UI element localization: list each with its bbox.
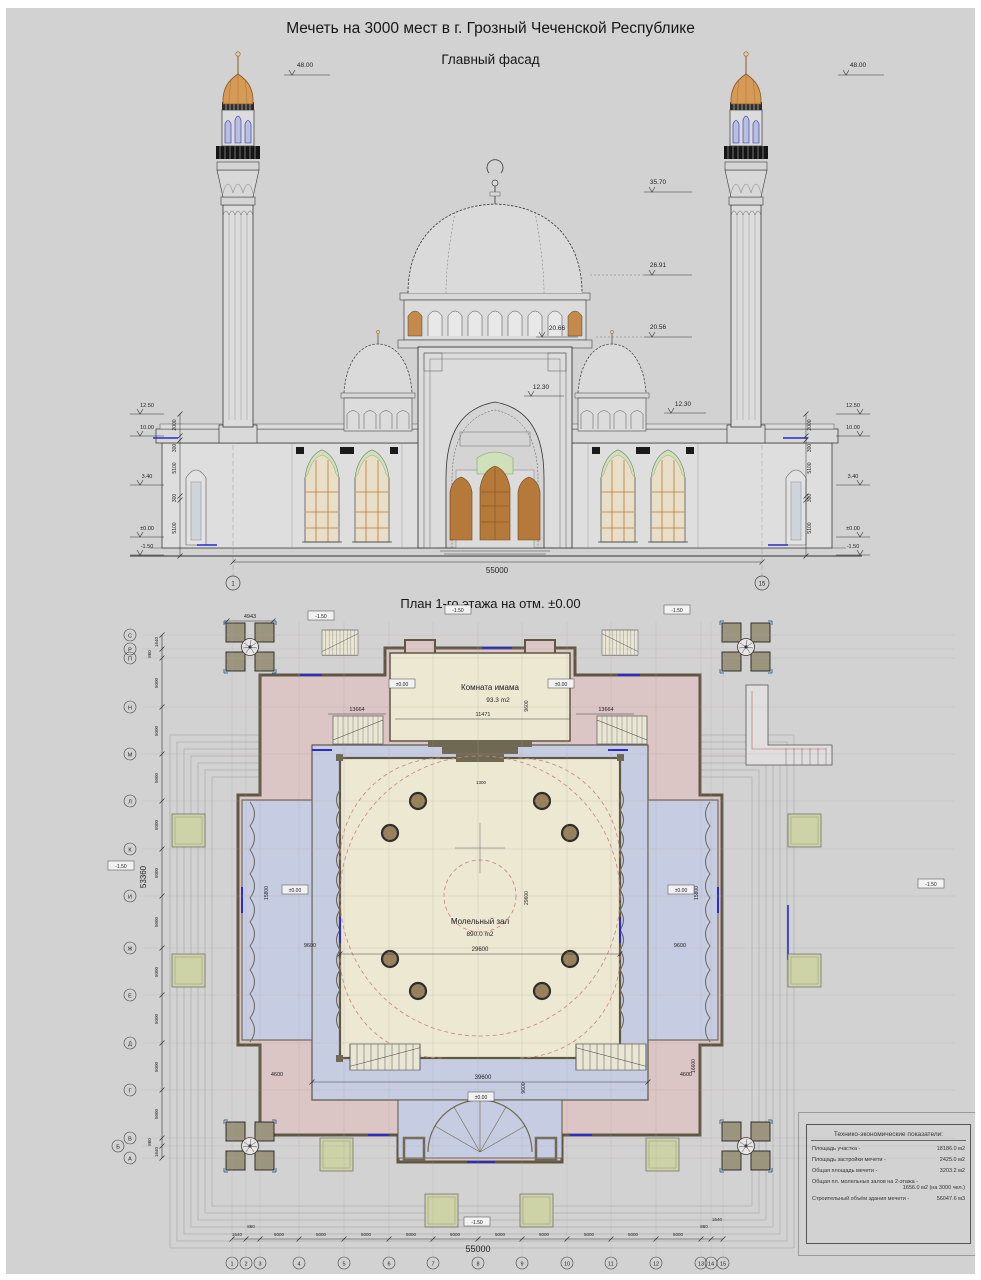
dim-29600-h: 29600 (472, 947, 489, 953)
level-mark: ±0.00 (140, 526, 154, 532)
teo-label: Строительный объём здания мечети - (812, 1196, 909, 1202)
axis-bubble: 13 (698, 1262, 704, 1268)
hall-label: Молельный зал (451, 917, 510, 926)
teo-value: 56047.6 м3 (937, 1196, 965, 1202)
level-box: -1.50 (315, 614, 327, 620)
dim: 5000 (539, 1232, 550, 1237)
level-box: -1.50 (471, 1220, 483, 1226)
stair-block (333, 716, 383, 744)
vdim: 300 (172, 494, 178, 503)
axis-bubble: Р (128, 648, 132, 654)
facade-levels-left: 12.50 10.00 3.40 ±0.00 -1.50 (130, 403, 164, 555)
plan-left-dims: 1640 860 5000 5000 5000 5000 5000 5000 5… (139, 633, 165, 1161)
dim-15800-right: 15800 (694, 886, 700, 900)
dim: 5000 (274, 1232, 285, 1237)
teo-label: Общая площадь мечети - (812, 1168, 877, 1174)
dim: 5000 (154, 1013, 159, 1024)
facade-axis-bubble: 1 (231, 582, 235, 588)
dim-1300: 1300 (476, 780, 487, 785)
axis-bubble: Д (128, 1042, 132, 1048)
axis-bubble: Н (128, 706, 132, 712)
facade-levels-right: 12.50 10.00 3.40 ±0.00 -1.50 (836, 403, 870, 555)
axis-bubble: Л (128, 800, 132, 806)
plan-grid-bubbles-left (112, 629, 136, 1164)
dim-15800-left: 15800 (264, 886, 270, 900)
ramp-right (746, 685, 832, 765)
level-mark: 12.50 (140, 403, 154, 409)
axis-bubble: 3 (258, 1262, 261, 1268)
vdim: 5100 (807, 462, 813, 473)
imam-room-label: Комната имама (461, 683, 519, 692)
stair-block (350, 1044, 420, 1070)
dim: 1640 (154, 1146, 159, 1157)
axis-bubble: 8 (476, 1262, 479, 1268)
dim-4600-left: 4600 (271, 1072, 283, 1078)
level-box: ±0.00 (555, 682, 568, 688)
teo-value: 2425.0 м2 (940, 1157, 965, 1163)
elev-48-right: 48.00 (850, 62, 867, 69)
dim: 5000 (154, 1108, 159, 1119)
dim: 5000 (628, 1232, 639, 1237)
prayer-hall (340, 758, 620, 1058)
teo-row: Площадь участка - 18186.0 м2 (812, 1146, 965, 1152)
elev-2066: 20.66 (549, 325, 566, 332)
facade-total-width: 55000 (486, 566, 509, 575)
axis-bubble: 10 (564, 1262, 570, 1268)
dim: 5000 (154, 1061, 159, 1072)
facade-drawing: 1 15 55000 48.00 48.00 35.70 26.91 20.56… (130, 52, 884, 590)
entrance-door (518, 477, 540, 540)
teo-label: Площадь застройки мечети - (812, 1157, 886, 1163)
level-box: -1.50 (925, 882, 937, 888)
level-mark: 10.00 (140, 425, 154, 431)
axis-bubble: Г (129, 1089, 132, 1095)
dim: 5000 (154, 966, 159, 977)
entrance-portal (418, 347, 572, 554)
level-mark: -1.50 (141, 544, 154, 550)
crescent-finial-icon (487, 160, 503, 173)
level-mark: -1.50 (847, 544, 860, 550)
teo-row: Площадь застройки мечети - 2425.0 м2 (812, 1157, 965, 1163)
axis-bubble: В (128, 1137, 132, 1143)
axis-bubble: 14 (708, 1262, 714, 1268)
dim: 1640 (712, 1217, 723, 1222)
teo-title: Технико-экономические показатели: (811, 1131, 966, 1141)
dim-9600-right: 9600 (674, 943, 686, 949)
axis-bubble: Ж (127, 947, 132, 953)
vdim: 5100 (807, 522, 813, 533)
side-bay-left (242, 800, 312, 1040)
teo-value: 18186.0 м2 (937, 1146, 965, 1152)
elev-1230-right: 12.30 (675, 401, 692, 408)
level-box: ±0.00 (675, 888, 688, 894)
elev-3570: 35.70 (650, 179, 667, 186)
axis-bubble: Б (116, 1145, 120, 1151)
level-box: ±0.00 (289, 888, 302, 894)
teo-label: Площадь участка - (812, 1146, 860, 1152)
drawing-sheet: Мечеть на 3000 мест в г. Грозный Чеченск… (6, 8, 975, 1274)
teo-value: 3203.2 м2 (940, 1168, 965, 1174)
teo-table: Технико-экономические показатели: Площад… (806, 1124, 971, 1244)
exterior-stair (602, 630, 638, 655)
facade-axis-bubble: 15 (759, 582, 766, 588)
axis-bubble: 6 (387, 1262, 390, 1268)
dim-16600: 16600 (691, 1059, 697, 1073)
plan-total-height: 53360 (139, 865, 148, 888)
level-mark: 12.50 (846, 403, 860, 409)
dim: 860 (147, 650, 152, 658)
dim-9600-bottom: 9600 (521, 1082, 527, 1093)
level-mark: 3.40 (142, 474, 153, 480)
elev-2056: 20.56 (650, 324, 667, 331)
plan-total-width: 55000 (465, 1244, 490, 1254)
stair-block (597, 716, 647, 744)
vdim: 5100 (172, 462, 178, 473)
level-mark: ±0.00 (846, 526, 860, 532)
teo-row: Строительный объём здания мечети - 56047… (812, 1196, 965, 1202)
imam-room-area: 93.3 m2 (486, 697, 510, 704)
axis-bubble: 2 (244, 1262, 247, 1268)
side-bay-right (648, 800, 718, 1040)
planting-square (646, 1138, 679, 1171)
axis-bubble: 4 (297, 1262, 300, 1268)
architectural-drawing: 1 15 55000 48.00 48.00 35.70 26.91 20.56… (6, 8, 975, 1274)
dim: 860 (700, 1224, 708, 1229)
axis-bubble: 9 (520, 1262, 523, 1268)
dim: 5000 (154, 819, 159, 830)
level-mark: 10.00 (846, 425, 860, 431)
level-box: ±0.00 (396, 682, 409, 688)
central-dome (398, 160, 592, 348)
dim-39600: 39600 (475, 1075, 492, 1081)
dim: 1640 (154, 636, 159, 647)
vdim: 5100 (172, 522, 178, 533)
dim: 5000 (673, 1232, 684, 1237)
dim: 5000 (450, 1232, 461, 1237)
minaret-left (216, 52, 260, 443)
teo-value: 1656.0 м2 (на 3000 чел.) (812, 1185, 965, 1191)
imam-room (390, 653, 570, 741)
planting-square (172, 954, 205, 987)
elev-1230-center: 12.30 (533, 384, 550, 391)
entrance-door (450, 477, 472, 540)
vdim: 300 (807, 444, 813, 453)
planting-square (520, 1194, 553, 1227)
axis-bubble: 7 (431, 1262, 434, 1268)
dim: 5000 (154, 916, 159, 927)
vdim: 300 (807, 494, 813, 503)
dim: 5000 (406, 1232, 417, 1237)
level-box: -1.50 (671, 608, 683, 614)
planting-square (172, 814, 205, 847)
hall-area: 890.0 m2 (466, 931, 493, 938)
dim-11471: 11471 (476, 712, 491, 718)
dim: 860 (147, 1138, 152, 1146)
axis-bubble: А (128, 1157, 132, 1163)
dim: 860 (247, 1224, 255, 1229)
dim: 5000 (154, 772, 159, 783)
dim-4943: 4943 (244, 614, 256, 620)
vdim: 300 (172, 444, 178, 453)
dim: 5000 (154, 867, 159, 878)
elev-2691: 26.91 (650, 262, 667, 269)
axis-bubble: П (128, 657, 132, 663)
axis-bubble: 1 (230, 1262, 233, 1268)
minaret-plan (720, 621, 772, 673)
level-box: -1.50 (115, 864, 127, 870)
level-box: -1.50 (452, 608, 464, 614)
vdim: 2000 (807, 419, 813, 430)
planting-square (425, 1194, 458, 1227)
level-box: ±0.00 (475, 1095, 488, 1101)
axis-bubble: С (128, 634, 132, 640)
axis-bubble: 5 (342, 1262, 345, 1268)
planting-square (320, 1138, 353, 1171)
axis-bubble: 11 (608, 1262, 614, 1268)
dim-9600-v: 9600 (524, 700, 530, 711)
dim: 5000 (154, 677, 159, 688)
dim-13664-right: 13664 (598, 707, 613, 713)
planting-square (788, 954, 821, 987)
dim-9600-left: 9600 (304, 943, 316, 949)
dim: 5000 (584, 1232, 595, 1237)
axis-bubble: Е (128, 994, 132, 1000)
minaret-right (724, 52, 768, 443)
planting-square (788, 814, 821, 847)
dim-13664-left: 13664 (349, 707, 364, 713)
dim: 1640 (232, 1232, 243, 1237)
vdim: 2000 (172, 419, 178, 430)
dim: 5000 (361, 1232, 372, 1237)
dim: 5000 (316, 1232, 327, 1237)
elev-48-left: 48.00 (297, 62, 314, 69)
axis-bubble: И (128, 895, 132, 901)
dim: 5000 (495, 1232, 506, 1237)
axis-bubble: К (128, 848, 132, 854)
level-mark: 3.40 (848, 474, 859, 480)
axis-bubble: М (128, 753, 133, 759)
dim-29600-v: 29600 (524, 891, 530, 905)
teo-row: Общая площадь мечети - 3203.2 м2 (812, 1168, 965, 1174)
axis-bubble: 15 (720, 1262, 726, 1268)
exterior-stair (322, 630, 358, 655)
axis-bubble: 12 (653, 1262, 659, 1268)
dim: 5000 (154, 725, 159, 736)
